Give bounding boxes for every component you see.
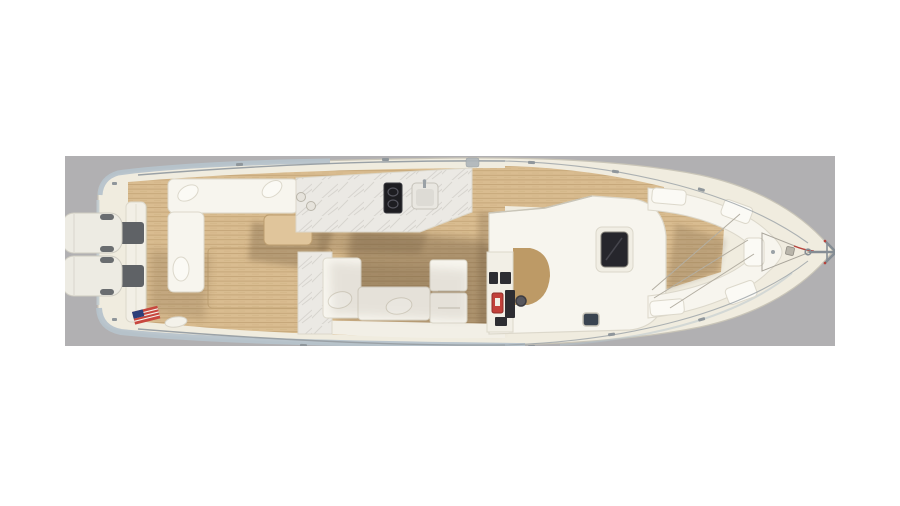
aft-chaise [168,212,204,292]
boarding-gate-hardware [466,158,479,167]
extinguisher-label [495,298,500,306]
hardtop [487,196,666,334]
electronics-panel [505,290,515,318]
boat [62,158,836,350]
cooktop [384,183,402,213]
steering-wheel [516,296,526,306]
deck-hatch [583,313,599,326]
galley-sink [412,179,438,209]
helm-screens [489,272,511,284]
chaise-towel [173,257,189,281]
dinette-shadow [330,262,468,320]
yacht-deckplan-render [0,0,900,506]
outboard-engine-port [62,213,122,253]
helm-console [487,252,515,332]
switch-panel [495,317,507,326]
outboard-engine-starboard [62,256,122,296]
yacht-top-view [0,0,900,506]
